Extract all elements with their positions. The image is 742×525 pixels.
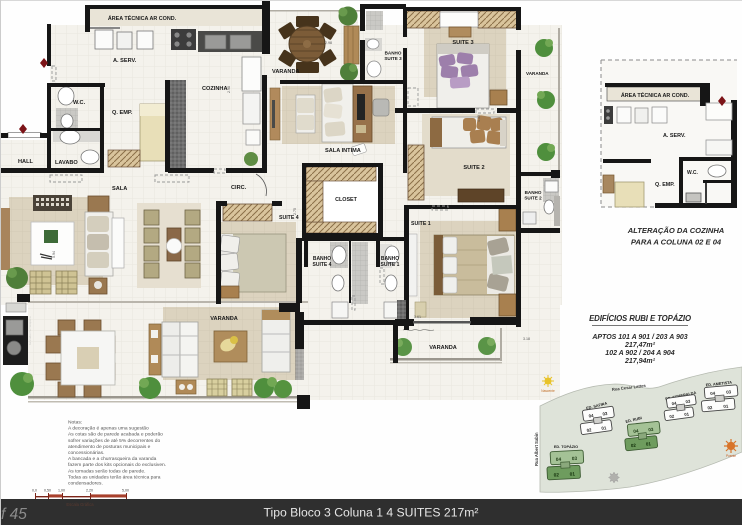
svg-text:A. SERV.: A. SERV. — [663, 133, 686, 139]
svg-text:Notas:: Notas: — [68, 420, 82, 426]
svg-text:LAVABO: LAVABO — [55, 160, 78, 166]
svg-text:SALA: SALA — [112, 186, 127, 192]
svg-text:7.22: 7.22 — [225, 317, 232, 321]
svg-text:SUITE 3: SUITE 3 — [452, 40, 473, 46]
svg-text:SUITE 2: SUITE 2 — [463, 165, 484, 171]
svg-text:VARANDA: VARANDA — [272, 69, 300, 75]
svg-text:Escala Gráfica: Escala Gráfica — [66, 502, 94, 507]
svg-text:ÁREA TÉCNICA AR COND.: ÁREA TÉCNICA AR COND. — [621, 91, 690, 99]
svg-text:0,50: 0,50 — [44, 489, 51, 493]
svg-text:Q. EMP.: Q. EMP. — [112, 110, 133, 116]
svg-text:ED. TOPÁZIO: ED. TOPÁZIO — [554, 444, 578, 449]
svg-text:As cotas são de parede acabada: As cotas são de parede acabada e poderão — [68, 432, 163, 438]
svg-text:01: 01 — [570, 472, 576, 478]
svg-text:03: 03 — [572, 456, 578, 462]
svg-text:VARANDA: VARANDA — [210, 316, 238, 322]
svg-text:02: 02 — [554, 472, 560, 478]
svg-text:bancada churrasqueira: bancada churrasqueira — [28, 316, 32, 345]
svg-text:PARA A COLUNA 02 E 04: PARA A COLUNA 02 E 04 — [631, 238, 722, 247]
svg-text:1,00: 1,00 — [58, 489, 65, 493]
svg-text:Rua Albert Sabin: Rua Albert Sabin — [534, 432, 539, 466]
svg-text:COZINHA: COZINHA — [202, 86, 227, 92]
svg-text:W.C.: W.C. — [687, 170, 698, 176]
svg-text:5.94: 5.94 — [52, 251, 56, 258]
svg-text:Q. EMP.: Q. EMP. — [655, 182, 675, 188]
svg-text:condensadores.: condensadores. — [68, 481, 103, 487]
svg-text:BANHO: BANHO — [525, 190, 542, 195]
svg-text:5,00: 5,00 — [122, 489, 129, 493]
svg-text:fazem parte dos kits opcionais: fazem parte dos kits opcionais do exclus… — [68, 462, 166, 468]
svg-text:4.83: 4.83 — [183, 118, 187, 125]
svg-text:Tipo Bloco 3 Coluna 1 4 SUITES: Tipo Bloco 3 Coluna 1 4 SUITES 217m² — [264, 506, 479, 520]
svg-text:CLOSET: CLOSET — [335, 197, 358, 203]
svg-text:04: 04 — [633, 428, 639, 434]
svg-text:2.98: 2.98 — [325, 41, 332, 45]
svg-text:4.19: 4.19 — [477, 115, 481, 122]
svg-text:01: 01 — [646, 441, 652, 447]
svg-text:102 A 902 / 204 A 904: 102 A 902 / 204 A 904 — [605, 350, 675, 357]
svg-text:04: 04 — [556, 457, 562, 463]
svg-text:02: 02 — [631, 443, 637, 449]
svg-text:VARANDA: VARANDA — [429, 345, 457, 351]
svg-text:2.98: 2.98 — [227, 86, 231, 93]
svg-text:SUITE 2: SUITE 2 — [524, 196, 542, 201]
svg-text:SUITE 1: SUITE 1 — [381, 262, 400, 268]
svg-text:217,94m¹: 217,94m¹ — [624, 358, 656, 365]
svg-text:A decoração é apenas uma: A decoração é apenas uma sugestão — [68, 426, 149, 432]
svg-text:ALTERAÇÃO DA COZINHA: ALTERAÇÃO DA COZINHA — [627, 226, 725, 235]
svg-text:2.75: 2.75 — [293, 208, 297, 215]
svg-text:SALA INTIMA: SALA INTIMA — [325, 148, 361, 154]
svg-text:EDIFÍCIOS RUBI E TOPÁZIO: EDIFÍCIOS RUBI E TOPÁZIO — [589, 314, 691, 323]
svg-text:3.18: 3.18 — [523, 337, 530, 341]
svg-text:APTOS 101 A 901 / 203 A 903: APTOS 101 A 901 / 203 A 903 — [591, 334, 687, 341]
svg-text:SUITE 4: SUITE 4 — [313, 262, 332, 268]
svg-text:SUITE 1: SUITE 1 — [411, 221, 431, 227]
svg-text:SUITE 3: SUITE 3 — [384, 56, 402, 61]
svg-text:concessionárias.: concessionárias. — [68, 450, 104, 456]
svg-text:0,0: 0,0 — [32, 489, 37, 493]
svg-text:Todas as unidades terão ár: Todas as unidades terão área técnica par… — [68, 474, 161, 480]
svg-text:HALL: HALL — [18, 159, 33, 165]
svg-text:3.61: 3.61 — [414, 315, 421, 319]
svg-text:A bancada e a churrasqueir: A bancada e a churrasqueira da varanda — [68, 456, 157, 462]
svg-text:VARANDA: VARANDA — [526, 71, 549, 76]
svg-text:CIRC.: CIRC. — [231, 185, 247, 191]
svg-text:W.C.: W.C. — [73, 100, 86, 106]
svg-text:Nascente: Nascente — [541, 389, 555, 393]
svg-text:2,20: 2,20 — [86, 489, 93, 493]
svg-text:ÁREA TÉCNICA AR COND.: ÁREA TÉCNICA AR COND. — [108, 14, 177, 22]
svg-text:f 45: f 45 — [1, 506, 27, 523]
svg-text:BANHO: BANHO — [385, 51, 402, 56]
svg-text:03: 03 — [648, 427, 654, 433]
svg-text:sofrer variações de até 5% d: sofrer variações de até 5% decorrentes d… — [68, 438, 160, 444]
svg-text:A. SERV.: A. SERV. — [113, 58, 137, 64]
svg-text:atendimento de posturas: atendimento de posturas municipais e — [68, 444, 151, 450]
svg-text:217,47m²: 217,47m² — [624, 342, 656, 349]
svg-text:As tomadas serão todas de pare: As tomadas serão todas de parede. — [68, 468, 145, 474]
svg-text:Poente: Poente — [726, 454, 736, 458]
